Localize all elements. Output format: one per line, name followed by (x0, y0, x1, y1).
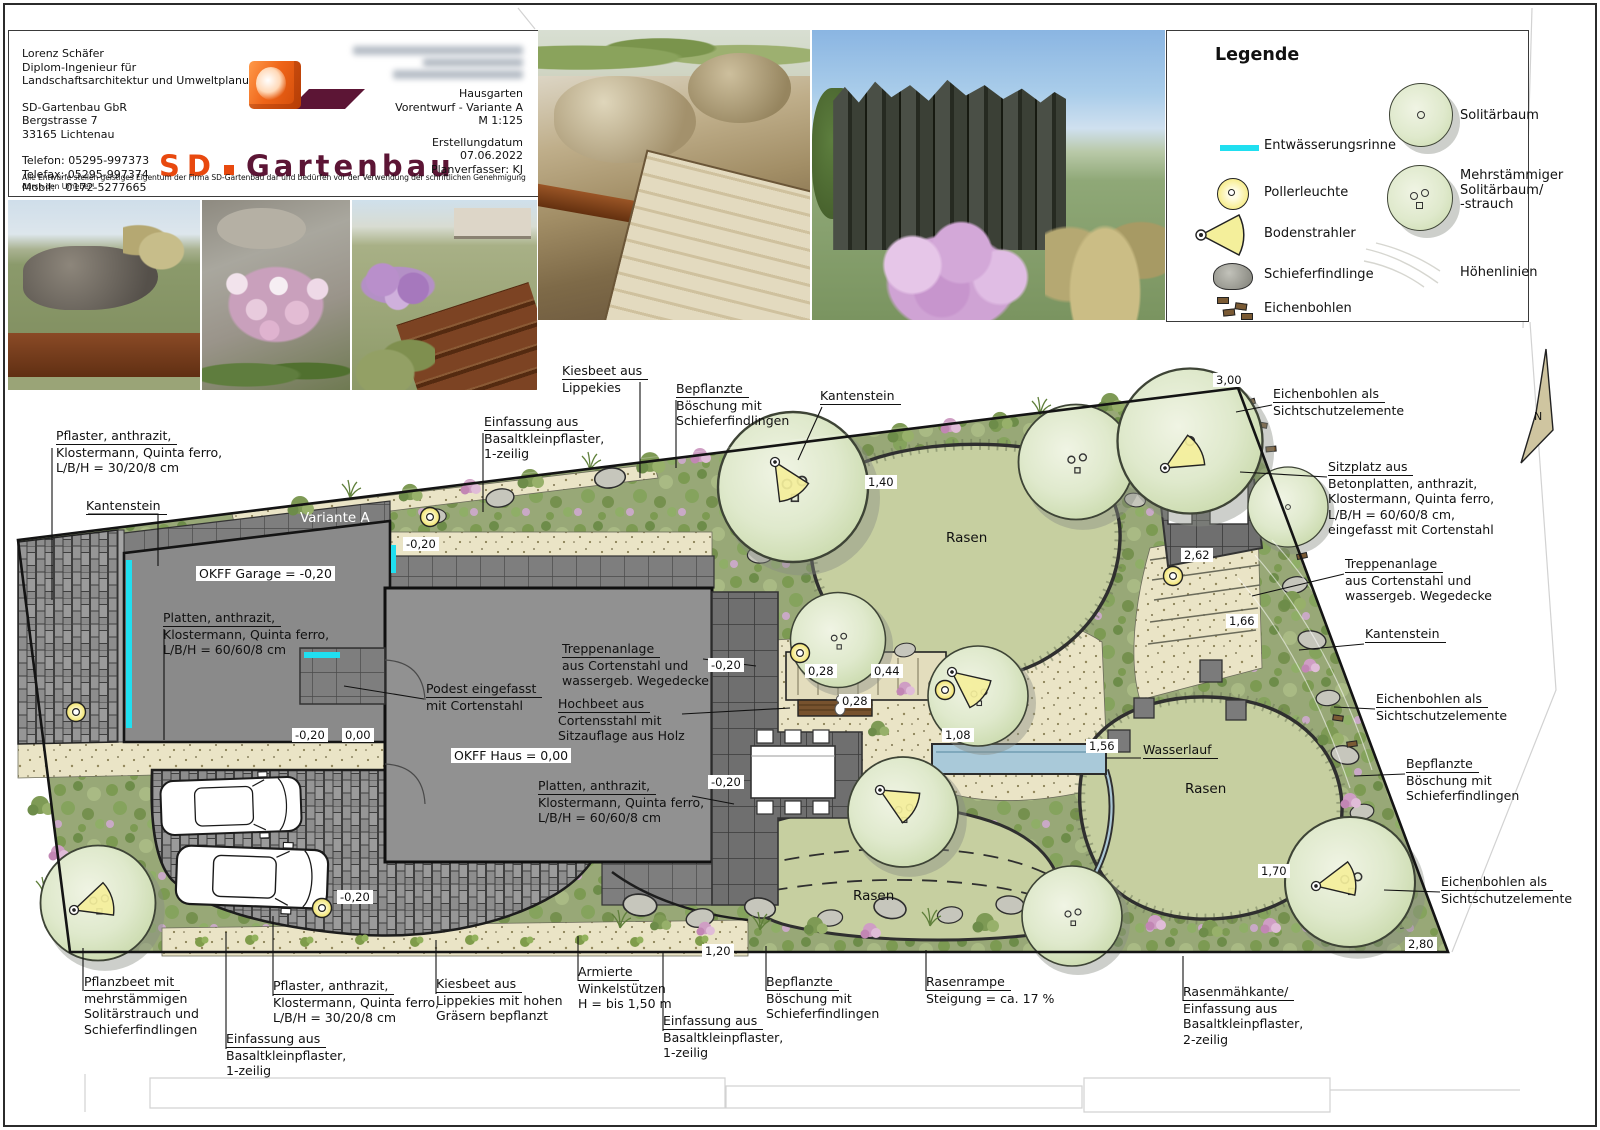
solitaerbaum-icon (1389, 83, 1453, 147)
entwaesserungsrinne-icon (1220, 145, 1259, 151)
callout-treppenanlage-mid: Treppenanlageaus Cortenstahl und wasserg… (562, 641, 709, 689)
measurement-label: 0,00 (342, 728, 374, 742)
measurement-label: 0,28 (805, 664, 837, 678)
measurement-label: 1,20 (702, 944, 734, 958)
project-info: Hausgarten Vorentwurf - Variante A M 1:1… (353, 43, 523, 184)
car-icon (175, 839, 329, 916)
entwaesserungsrinne (126, 560, 132, 728)
copyright-note: Alle Entwürfe stellen geistiges Eigentum… (22, 173, 528, 191)
schieferfindling-icon (1213, 263, 1253, 290)
callout-winkelstuetzen: ArmierteWinkelstützen H = bis 1,50 m (578, 964, 672, 1012)
entwaesserungsrinne (391, 545, 396, 573)
callout-kiesbeet-bottom: Kiesbeet ausLippekies mit hohen Gräsern … (436, 976, 563, 1024)
area-label-rasen: Rasen (946, 530, 987, 546)
car-icon (160, 771, 302, 842)
callout-treppenanlage-right: Treppenanlageaus Cortenstahl und wasserg… (1345, 556, 1492, 604)
callout-kantenstein-top: Kantenstein (820, 388, 901, 405)
project-title: Hausgarten (353, 87, 523, 101)
mehrstaemmiger-baum-icon (1387, 165, 1453, 231)
legend-label-schieferfindlinge: Schieferfindlinge (1264, 268, 1374, 283)
callout-boeschung-top: BepflanzteBöschung mit Schieferfindlinge… (676, 381, 789, 429)
callout-rasenmaehkante: Rasenmähkante/Einfassung aus Basaltklein… (1183, 984, 1303, 1047)
measurement-label: -0,20 (403, 537, 439, 551)
callout-rasenrampe: RasenrampeSteigung = ca. 17 % (926, 974, 1054, 1006)
measurement-label: 0,44 (871, 664, 903, 678)
measurement-label: 1,08 (942, 728, 974, 742)
north-label: N (1534, 410, 1542, 423)
pollerleuchte-icon (1217, 178, 1249, 210)
callout-eichenbohlen-right: Eichenbohlen alsSichtschutzelemente (1376, 691, 1507, 723)
callout-pflaster-left: Pflaster, anthrazit,Klostermann, Quinta … (56, 428, 222, 476)
callout-eichenbohlen-topright: Eichenbohlen alsSichtschutzelemente (1273, 386, 1404, 418)
dining-table (751, 730, 835, 814)
measurement-label: 0,28 (839, 694, 871, 708)
legend-label-mehrstaemmiger: Mehrstämmiger Solitärbaum/ -strauch (1460, 169, 1563, 213)
measurement-label: -0,20 (292, 728, 328, 742)
hoehenlinien-icon (1362, 239, 1442, 289)
legend-label-eichenbohlen: Eichenbohlen (1264, 302, 1352, 317)
callout-kiesbeet-top: Kiesbeet ausLippekies (562, 363, 648, 395)
callout-boeschung-bottom: BepflanzteBöschung mit Schieferfindlinge… (766, 974, 879, 1022)
title-block: Lorenz Schäfer Diplom-Ingenieur für Land… (8, 30, 539, 197)
legend-label-hoehenlinien: Höhenlinien (1460, 266, 1538, 281)
callout-kantenstein-left: Kantenstein (86, 498, 167, 515)
variant-label: Variante A (300, 510, 370, 526)
measurement-label: 2,80 (1405, 937, 1437, 951)
area-label-rasen: Rasen (853, 888, 894, 904)
legend-label-bodenstrahler: Bodenstrahler (1264, 227, 1356, 242)
area-label-rasen: Rasen (1185, 781, 1226, 797)
callout-pflanzbeet: Pflanzbeet mitmehrstämmigen Solitärstrau… (84, 974, 199, 1037)
legend-title: Legende (1215, 45, 1299, 65)
measurement-label: -0,20 (708, 775, 744, 789)
photo-flowers (202, 200, 350, 390)
callout-podest: Podest eingefasstmit Cortenstahl (426, 681, 542, 713)
callout-kantenstein-right: Kantenstein (1365, 626, 1446, 643)
photo-timber-fence-azalea (812, 30, 1165, 320)
photo-corten-steps (352, 200, 537, 390)
measurement-label: 3,00 (1213, 373, 1245, 387)
project-phase: Vorentwurf - Variante A (353, 101, 523, 115)
measurement-label: 1,40 (865, 475, 897, 489)
plan-sheet: { "title_block": { "author_lines": ["Lor… (0, 0, 1600, 1130)
callout-einfassung-bottom1: Einfassung ausBasaltkleinpflaster, 1-zei… (226, 1031, 346, 1079)
callout-einfassung-top: Einfassung ausBasaltkleinpflaster, 1-zei… (484, 414, 604, 462)
photo-garden-boulder (8, 200, 200, 390)
callout-boeschung-right: BepflanzteBöschung mit Schieferfindlinge… (1406, 756, 1519, 804)
creation-date: 07.06.2022 (353, 149, 523, 163)
measurement-label: 1,70 (1258, 864, 1290, 878)
north-arrow-icon (1521, 349, 1553, 463)
legend-label-pollerleuchte: Pollerleuchte (1264, 186, 1348, 201)
callout-platten-garage: Platten, anthrazit,Klostermann, Quinta f… (163, 610, 329, 658)
level-label-garage: OKFF Garage = -0,20 (196, 566, 335, 581)
level-label-haus: OKFF Haus = 0,00 (451, 748, 571, 763)
logo-cube (249, 61, 301, 109)
callout-wasserlauf: Wasserlauf (1143, 742, 1218, 759)
callout-eichenbohlen-bottomright: Eichenbohlen alsSichtschutzelemente (1441, 874, 1572, 906)
callout-sitzplatz: Sitzplatz ausBetonplatten, anthrazit, Kl… (1328, 459, 1494, 538)
measurement-label: -0,20 (708, 658, 744, 672)
company-address: SD-Gartenbau GbR Bergstrasse 7 33165 Lic… (22, 101, 263, 142)
redacted-block (353, 46, 523, 79)
callout-hochbeet: Hochbeet ausCortensstahl mit Sitzauflage… (558, 696, 685, 744)
legend-panel: Legende Entwässerungsrinne Pollerleuchte… (1166, 30, 1529, 322)
measurement-label: 1,56 (1086, 739, 1118, 753)
measurement-label: 2,62 (1181, 548, 1213, 562)
legend-label-entwaesserungsrinne: Entwässerungsrinne (1264, 139, 1396, 154)
author-name: Lorenz Schäfer (22, 47, 263, 61)
measurement-label: -0,20 (337, 890, 373, 904)
legend-label-solitaerbaum: Solitärbaum (1460, 109, 1539, 124)
measurement-label: 1,66 (1226, 614, 1258, 628)
bodenstrahler-icon (1193, 209, 1247, 261)
photo-rock-garden-deck (538, 30, 810, 320)
plan-scale: M 1:125 (353, 114, 523, 128)
callout-pflaster-bottom: Pflaster, anthrazit,Klostermann, Quinta … (273, 978, 439, 1026)
callout-platten-mid: Platten, anthrazit,Klostermann, Quinta f… (538, 778, 704, 826)
